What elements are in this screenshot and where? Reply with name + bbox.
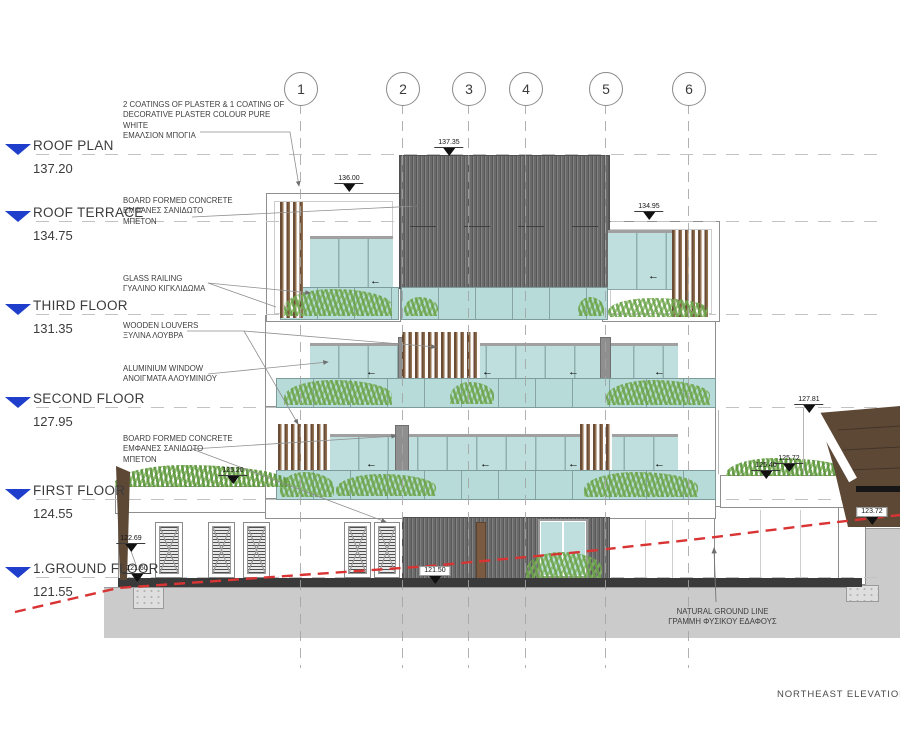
spot-value: 125.20 [218,467,247,476]
annotation-line: ΓΥΑΛΙΝΟ ΚΙΓΚΛΙΔΩΜΑ [123,284,205,294]
level-elevation: 134.75 [33,228,73,243]
annotation-line: DECORATIVE PLASTER COLOUR PURE [123,110,284,120]
annotation-line: NATURAL GROUND LINE [640,607,805,617]
grid-bubble-5: 5 [589,72,623,106]
spot-elevation: 123.72 [856,507,887,525]
drawing-title: NORTHEAST ELEVATION [777,689,900,700]
annotation-line: ΕΜΦΑΝΕΣ ΣΑΝΙΔΩΤΟ [123,206,233,216]
level-elevation: 131.35 [33,321,73,336]
spot-triangle-icon [443,148,455,156]
grid-line-2 [402,104,403,668]
annotation-line: BOARD FORMED CONCRETE [123,196,233,206]
annotation-line: ALUMINIUM WINDOW [123,364,217,374]
spot-value: 136.00 [334,175,363,184]
level-triangle-icon [5,304,31,315]
annotation-line: BOARD FORMED CONCRETE [123,434,233,444]
level-elevation: 137.20 [33,161,73,176]
spot-value: 121.60 [122,565,151,574]
spot-triangle-icon [760,471,772,479]
spot-elevation: 121.60 [122,565,151,582]
grid-number: 6 [685,81,693,97]
annotation-line: WOODEN LOUVERS [123,321,198,331]
grid-number: 2 [399,81,407,97]
spot-elevation: 125.40 [751,462,780,479]
spot-triangle-icon [866,517,878,525]
level-triangle-icon [5,567,31,578]
level-name: SECOND FLOOR [33,391,145,406]
spot-value: 125.40 [751,462,780,471]
annotation-line: WHITE [123,121,284,131]
level-name: FIRST FLOOR [33,483,125,498]
spot-elevation: 134.95 [634,203,663,220]
elevation-drawing: ← ← ← ← ← ← ← ← ← ← [0,0,900,756]
grid-number: 5 [602,81,610,97]
grid-line-1 [300,104,301,668]
annotation-line: GLASS RAILING [123,274,205,284]
annotation-line: ΑΝΟΙΓΜΑΤΑ ΑΛΟΥΜΙΝΙΟΥ [123,374,217,384]
spot-elevation: 127.81 [794,396,823,413]
spot-triangle-icon [429,576,441,584]
level-triangle-icon [5,144,31,155]
grid-bubble-2: 2 [386,72,420,106]
level-name: ROOF PLAN [33,138,114,153]
spot-value: 122.69 [116,535,145,544]
annotation-plaster: 2 COATINGS OF PLASTER & 1 COATING OF DEC… [123,100,284,141]
spot-triangle-icon [125,544,137,552]
annotation-line: ΜΠΕΤΟΝ [123,217,233,227]
grid-number: 4 [522,81,530,97]
grid-line-3 [468,104,469,668]
spot-value: 127.81 [794,396,823,405]
spot-elevation: 122.69 [116,535,145,552]
annotation-concrete-upper: BOARD FORMED CONCRETE ΕΜΦΑΝΕΣ ΣΑΝΙΔΩΤΟ Μ… [123,196,233,227]
annotation-natural-ground: NATURAL GROUND LINE ΓΡΑΜΜΗ ΦΥΣΙΚΟΥ ΕΔΑΦΟ… [640,607,805,628]
level-triangle-icon [5,397,31,408]
grid-number: 1 [297,81,305,97]
annotation-line: 2 COATINGS OF PLASTER & 1 COATING OF [123,100,284,110]
level-triangle-icon [5,211,31,222]
annotation-line: ΓΡΑΜΜΗ ΦΥΣΙΚΟΥ ΕΔΑΦΟΥΣ [640,617,805,627]
spot-triangle-icon [783,464,795,472]
grid-number: 3 [465,81,473,97]
spot-triangle-icon [227,476,239,484]
level-name: THIRD FLOOR [33,298,128,313]
annotation-wooden-louvers: WOODEN LOUVERS ΞΥΛΙΝΑ ΛΟΥΒΡΑ [123,321,198,342]
spot-elevation: 137.35 [434,139,463,156]
grid-line-4 [525,104,526,668]
grid-bubble-6: 6 [672,72,706,106]
spot-elevation: 125.20 [218,467,247,484]
annotation-line: ΞΥΛΙΝΑ ΛΟΥΒΡΑ [123,331,198,341]
spot-elevation: 136.00 [334,175,363,192]
annotation-aluminium-window: ALUMINIUM WINDOW ΑΝΟΙΓΜΑΤΑ ΑΛΟΥΜΙΝΙΟΥ [123,364,217,385]
grid-line-6 [688,104,689,668]
annotation-line: ΜΠΕΤΟΝ [123,455,233,465]
level-elevation: 127.95 [33,414,73,429]
spot-value: 137.35 [434,139,463,148]
spot-triangle-icon [803,405,815,413]
spot-value: 121.50 [419,566,450,576]
level-triangle-icon [5,489,31,500]
grid-bubble-1: 1 [284,72,318,106]
spot-triangle-icon [343,184,355,192]
spot-elevation: 121.50 [419,566,450,584]
spot-triangle-icon [131,574,143,582]
grid-bubble-3: 3 [452,72,486,106]
annotation-concrete-lower: BOARD FORMED CONCRETE ΕΜΦΑΝΕΣ ΣΑΝΙΔΩΤΟ Μ… [123,434,233,465]
annotation-glass-railing: GLASS RAILING ΓΥΑΛΙΝΟ ΚΙΓΚΛΙΔΩΜΑ [123,274,205,295]
level-elevation: 121.55 [33,584,73,599]
annotation-line: ΕΜΑΛΣΙΟΝ ΜΠΟΓΙΑ [123,131,284,141]
ground-line-pointer [714,548,716,602]
spot-value: 134.95 [634,203,663,212]
annotation-line: ΕΜΦΑΝΕΣ ΣΑΝΙΔΩΤΟ [123,444,233,454]
level-elevation: 124.55 [33,506,73,521]
spot-value: 123.72 [856,507,887,517]
spot-triangle-icon [643,212,655,220]
grid-line-5 [605,104,606,668]
grid-bubble-4: 4 [509,72,543,106]
